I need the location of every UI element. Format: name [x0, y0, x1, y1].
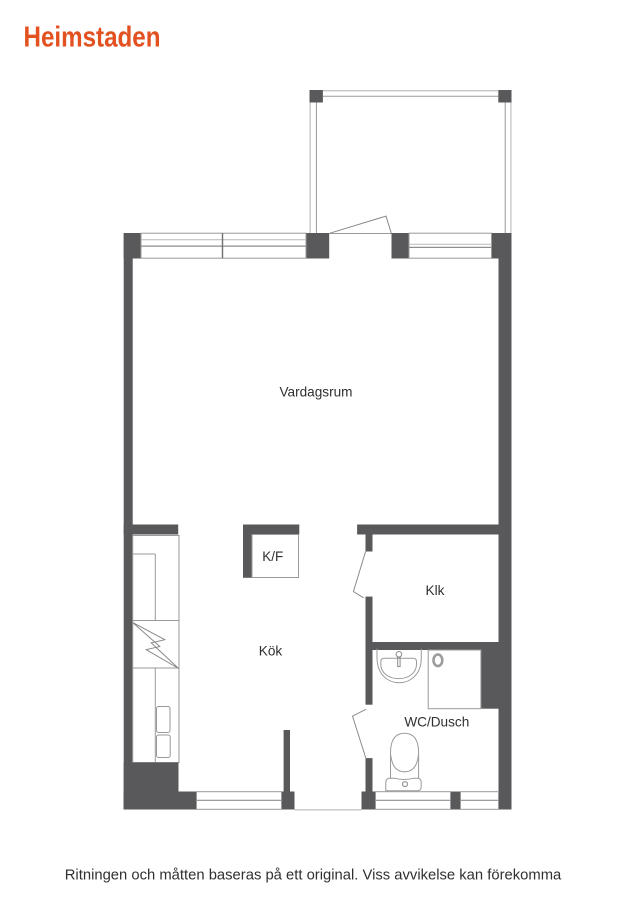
svg-text:K/F: K/F	[262, 549, 283, 564]
svg-text:Kök: Kök	[259, 644, 283, 659]
svg-text:Klk: Klk	[426, 583, 445, 598]
svg-text:Vardagsrum: Vardagsrum	[279, 385, 352, 400]
svg-text:Ritningen och måtten baseras p: Ritningen och måtten baseras på ett orig…	[65, 868, 562, 884]
svg-text:WC/Dusch: WC/Dusch	[404, 715, 469, 730]
svg-text:Heimstaden: Heimstaden	[24, 22, 161, 54]
